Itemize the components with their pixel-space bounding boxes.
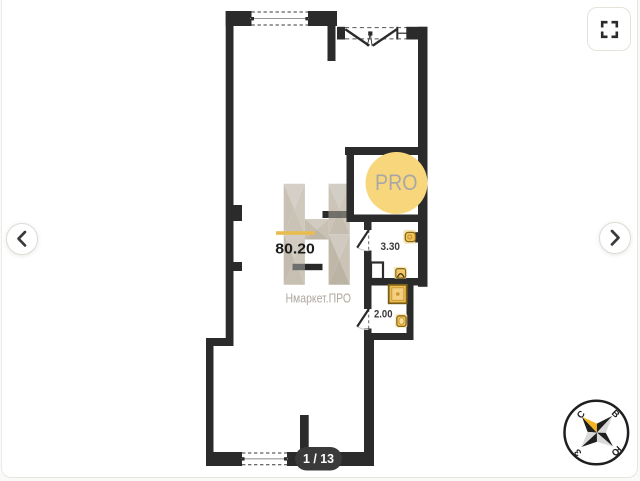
svg-text:Нмаркет.ПРО: Нмаркет.ПРО — [286, 291, 352, 306]
svg-text:80.20: 80.20 — [275, 241, 315, 258]
svg-text:2.00: 2.00 — [374, 308, 393, 320]
svg-text:PRO: PRO — [375, 170, 418, 195]
svg-text:1 / 13: 1 / 13 — [303, 451, 334, 466]
svg-text:3.30: 3.30 — [381, 241, 401, 253]
